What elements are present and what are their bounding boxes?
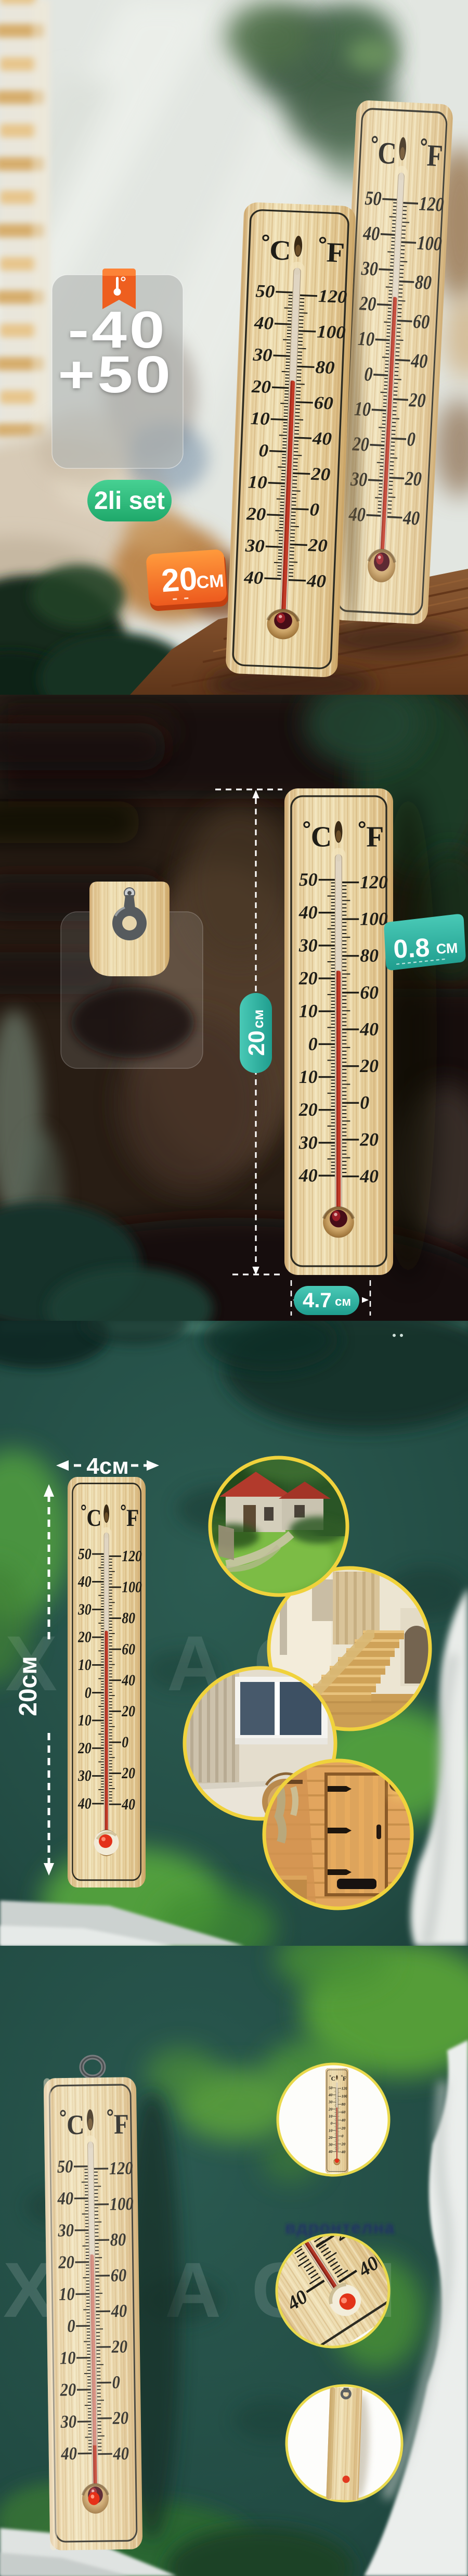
svg-text:4см: 4см [86,1453,129,1479]
svg-text:4.7: 4.7 [303,1289,332,1312]
svg-text:20: 20 [244,1030,269,1056]
svg-text:2li set: 2li set [94,487,165,515]
svg-text:20см: 20см [15,1656,42,1716]
svg-text:см: см [250,1010,266,1028]
svg-text:0.8: 0.8 [393,933,430,964]
svg-text:СМ: СМ [436,940,458,957]
svg-text:см: см [335,1295,351,1309]
svg-text:20: 20 [160,561,199,600]
svg-text:CM: CM [196,571,224,593]
svg-text:+50: +50 [58,345,173,403]
